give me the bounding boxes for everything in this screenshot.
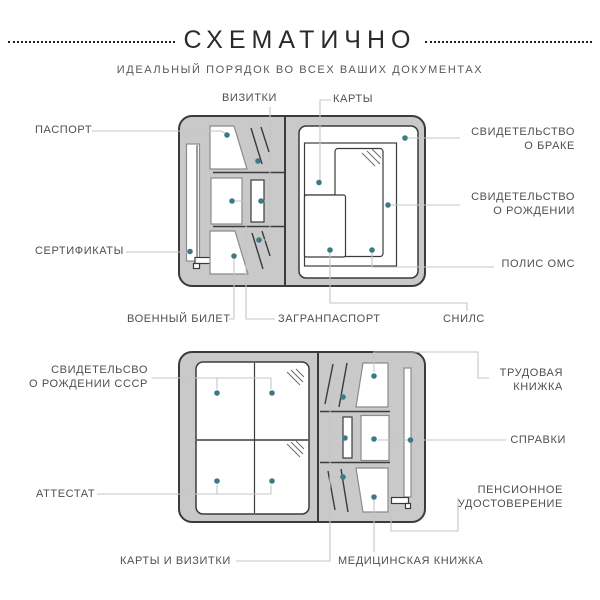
label-military-id: ВОЕННЫЙ БИЛЕТ <box>127 313 231 327</box>
top-organizer-diagram <box>92 100 494 319</box>
label-line: О РОЖДЕНИИ СССР <box>28 378 148 392</box>
label-line: СВИДЕТЕЛЬСТВО <box>471 191 575 205</box>
poster-canvas: СХЕМАТИЧНО ИДЕАЛЬНЫЙ ПОРЯДОК ВО ВСЕХ ВАШ… <box>0 0 600 600</box>
label-line: ТРУДОВАЯ <box>500 367 563 381</box>
label-oms-policy: ПОЛИС ОМС <box>501 258 575 272</box>
label-line: О БРАКЕ <box>471 140 575 154</box>
label-line: О РОЖДЕНИИ <box>471 205 575 219</box>
bottom-organizer-diagram <box>97 352 506 561</box>
label-birth-certificate: СВИДЕТЕЛЬСТВО О РОЖДЕНИИ <box>471 191 575 218</box>
label-business-cards: ВИЗИТКИ <box>222 92 277 106</box>
label-line: СВИДЕТЕЛЬСВО <box>28 364 148 378</box>
label-work-record-book: ТРУДОВАЯ КНИЖКА <box>500 367 563 394</box>
label-snils: СНИЛС <box>443 313 485 327</box>
label-cards-and-business-cards: КАРТЫ И ВИЗИТКИ <box>120 555 231 569</box>
label-international-passport: ЗАГРАНПАСПОРТ <box>278 313 381 327</box>
right-page-pockets <box>299 126 418 278</box>
label-ussr-birth-certificate: СВИДЕТЕЛЬСВО О РОЖДЕНИИ СССР <box>28 364 148 391</box>
label-pension-certificate: ПЕНСИОННОЕ УДОСТОВЕРЕНИЕ <box>458 484 563 511</box>
label-cards: КАРТЫ <box>333 93 373 107</box>
label-attestat: АТТЕСТАТ <box>36 488 95 502</box>
label-passport: ПАСПОРТ <box>35 124 92 138</box>
label-medical-book: МЕДИЦИНСКАЯ КНИЖКА <box>338 555 484 569</box>
label-line: УДОСТОВЕРЕНИЕ <box>458 498 563 512</box>
label-references: СПРАВКИ <box>510 434 566 448</box>
label-line: КНИЖКА <box>500 381 563 395</box>
label-line: СВИДЕТЕЛЬСТВО <box>471 126 575 140</box>
label-certificates: СЕРТИФИКАТЫ <box>35 245 124 259</box>
label-marriage-certificate: СВИДЕТЕЛЬСТВО О БРАКЕ <box>471 126 575 153</box>
label-line: ПЕНСИОННОЕ <box>458 484 563 498</box>
left-page-quadrants <box>196 362 309 514</box>
